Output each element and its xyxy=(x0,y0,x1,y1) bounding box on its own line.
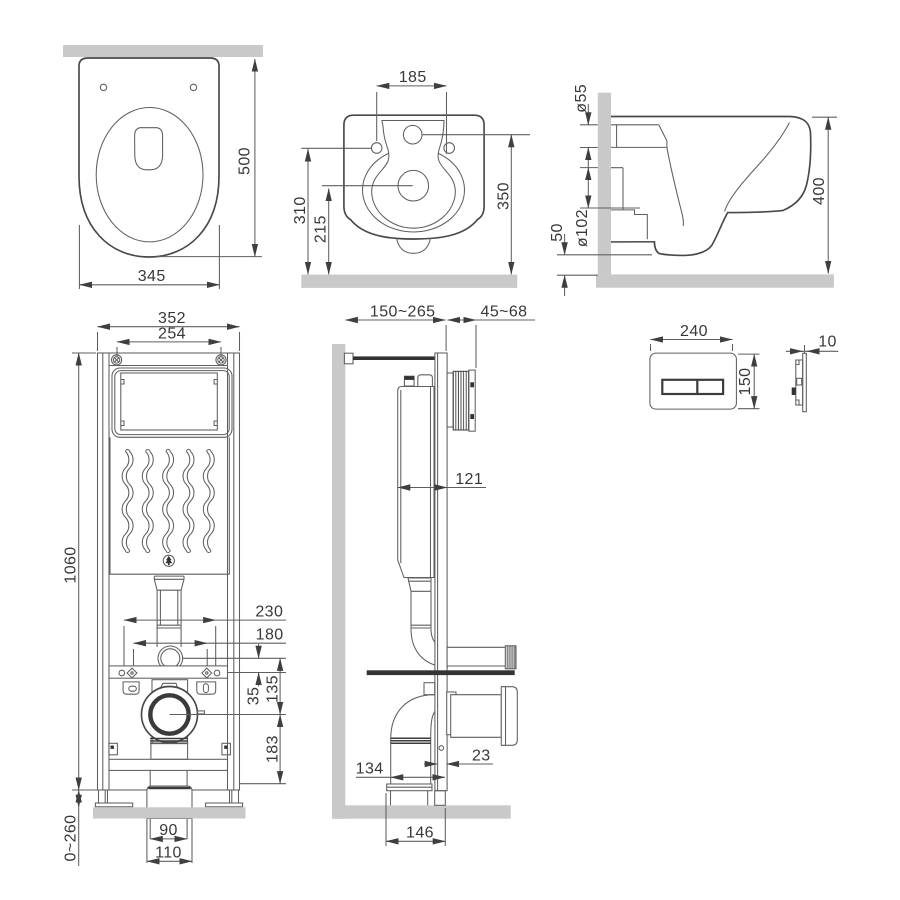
svg-text:400: 400 xyxy=(811,177,828,205)
svg-text:500: 500 xyxy=(237,147,254,175)
svg-text:ø102: ø102 xyxy=(574,209,591,247)
svg-text:35: 35 xyxy=(245,687,262,706)
svg-text:50: 50 xyxy=(549,223,566,242)
svg-text:350: 350 xyxy=(495,182,512,210)
svg-text:45~68: 45~68 xyxy=(481,303,528,320)
svg-text:352: 352 xyxy=(158,310,186,327)
svg-text:110: 110 xyxy=(155,845,182,862)
svg-text:310: 310 xyxy=(292,196,309,224)
svg-text:ø55: ø55 xyxy=(573,84,590,113)
svg-text:254: 254 xyxy=(158,326,186,343)
svg-text:10: 10 xyxy=(818,334,837,351)
svg-text:240: 240 xyxy=(680,323,708,340)
svg-text:185: 185 xyxy=(399,69,427,86)
svg-text:150: 150 xyxy=(737,368,754,396)
svg-text:121: 121 xyxy=(455,471,483,488)
svg-text:135: 135 xyxy=(264,675,281,703)
svg-text:90: 90 xyxy=(159,822,178,839)
svg-text:1060: 1060 xyxy=(63,546,80,583)
svg-text:215: 215 xyxy=(313,215,330,243)
svg-text:150~265: 150~265 xyxy=(370,303,436,320)
svg-text:0~260: 0~260 xyxy=(63,815,80,862)
svg-text:23: 23 xyxy=(472,747,491,764)
svg-text:134: 134 xyxy=(356,761,384,778)
svg-text:146: 146 xyxy=(406,825,434,842)
svg-text:183: 183 xyxy=(264,735,281,763)
svg-text:230: 230 xyxy=(255,604,283,621)
svg-text:180: 180 xyxy=(256,627,284,644)
svg-text:345: 345 xyxy=(138,268,166,285)
